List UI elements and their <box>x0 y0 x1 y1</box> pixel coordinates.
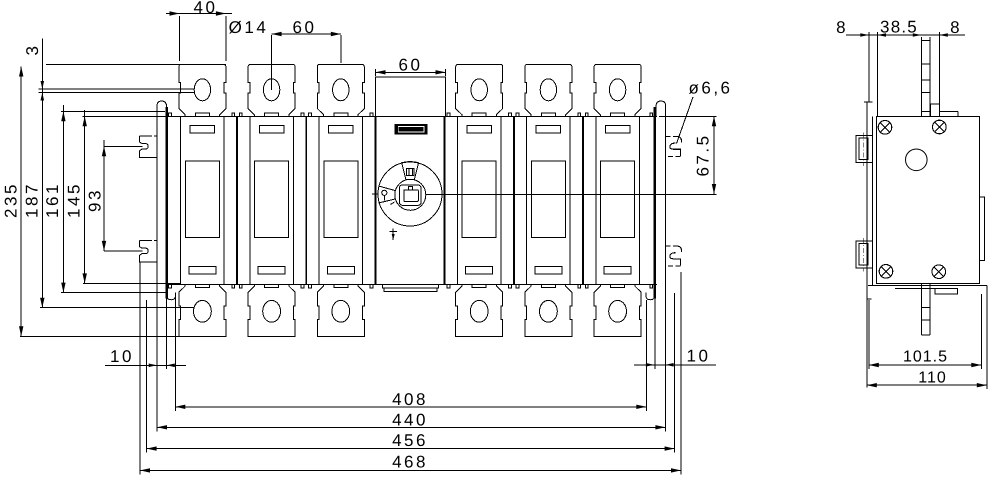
svg-text:408: 408 <box>392 390 428 409</box>
svg-text:10: 10 <box>110 347 134 366</box>
svg-text:67.5: 67.5 <box>694 133 713 176</box>
svg-text:60: 60 <box>399 56 423 75</box>
svg-text:468: 468 <box>392 452 428 471</box>
svg-text:110: 110 <box>918 369 947 386</box>
svg-text:10: 10 <box>687 347 711 366</box>
svg-text:60: 60 <box>293 18 317 37</box>
svg-text:Ø14: Ø14 <box>229 18 269 37</box>
svg-text:161: 161 <box>43 182 62 218</box>
svg-text:BEYLES: BEYLES <box>401 128 421 134</box>
svg-text:40: 40 <box>194 0 218 17</box>
svg-text:3: 3 <box>23 44 42 56</box>
svg-text:8: 8 <box>836 18 847 37</box>
svg-text:101.5: 101.5 <box>903 348 948 365</box>
svg-text:8: 8 <box>950 18 961 37</box>
svg-text:93: 93 <box>86 188 105 212</box>
svg-text:145: 145 <box>65 182 84 218</box>
svg-text:235: 235 <box>2 182 21 218</box>
svg-text:456: 456 <box>392 431 428 450</box>
svg-text:ø6,6: ø6,6 <box>688 79 732 98</box>
svg-text:187: 187 <box>23 182 42 218</box>
svg-text:440: 440 <box>392 410 428 429</box>
svg-text:38.5: 38.5 <box>880 18 918 37</box>
